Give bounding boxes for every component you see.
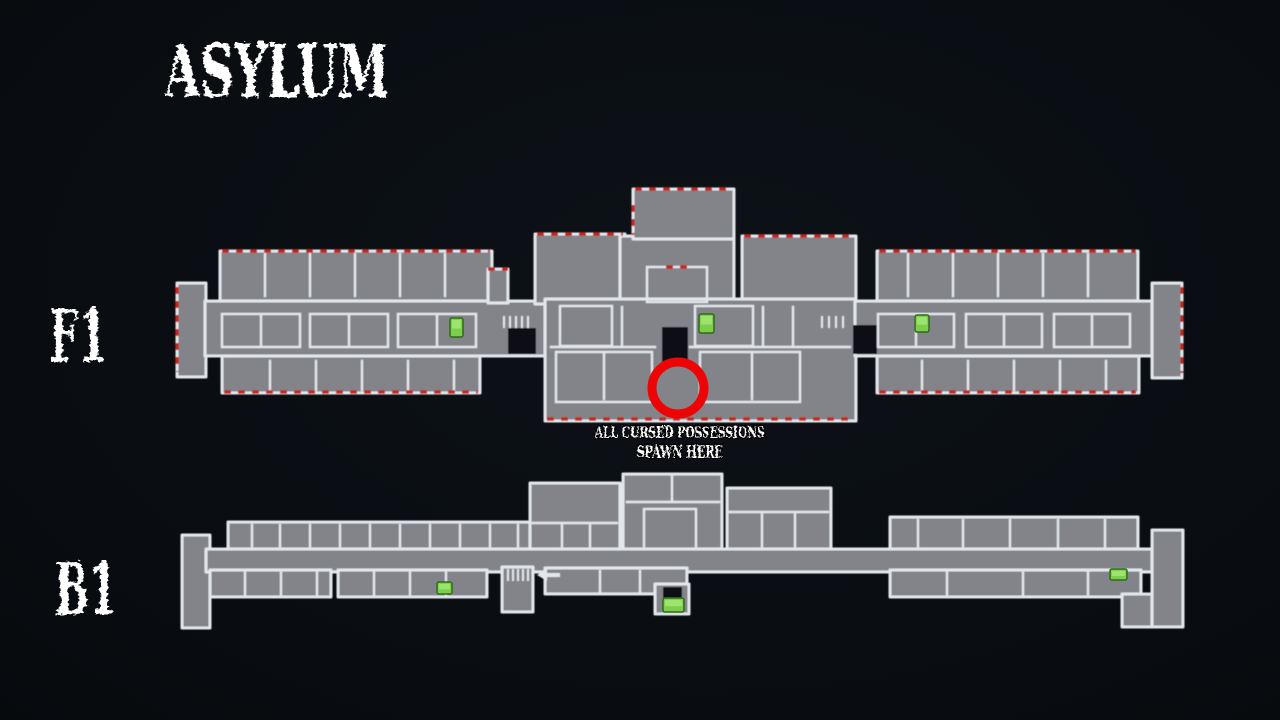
stair-exit-marker-highlight bbox=[1112, 571, 1125, 576]
annotation-line1: ALL CURSED POSSESSIONS bbox=[593, 422, 764, 441]
asylum-map-screen: ASYLUM F1 B1 ALL CURSED POSSESSIONS SPAW… bbox=[0, 0, 1280, 720]
stair-exit-marker-highlight bbox=[452, 320, 461, 329]
stair-exit-marker-highlight bbox=[439, 584, 450, 589]
floor-label-f1: F1 bbox=[48, 292, 106, 377]
annotation-line2: SPAWN HERE bbox=[636, 442, 722, 462]
floorplan-f1 bbox=[177, 189, 1182, 421]
stair-exit-marker-highlight bbox=[917, 317, 927, 325]
floor-label-b1: B1 bbox=[54, 545, 116, 630]
map-canvas: ASYLUM F1 B1 ALL CURSED POSSESSIONS SPAW… bbox=[0, 0, 1280, 720]
map-title: ASYLUM bbox=[162, 28, 388, 114]
stair-exit-marker-highlight bbox=[665, 600, 682, 606]
stair-exit-marker-highlight bbox=[701, 316, 712, 325]
